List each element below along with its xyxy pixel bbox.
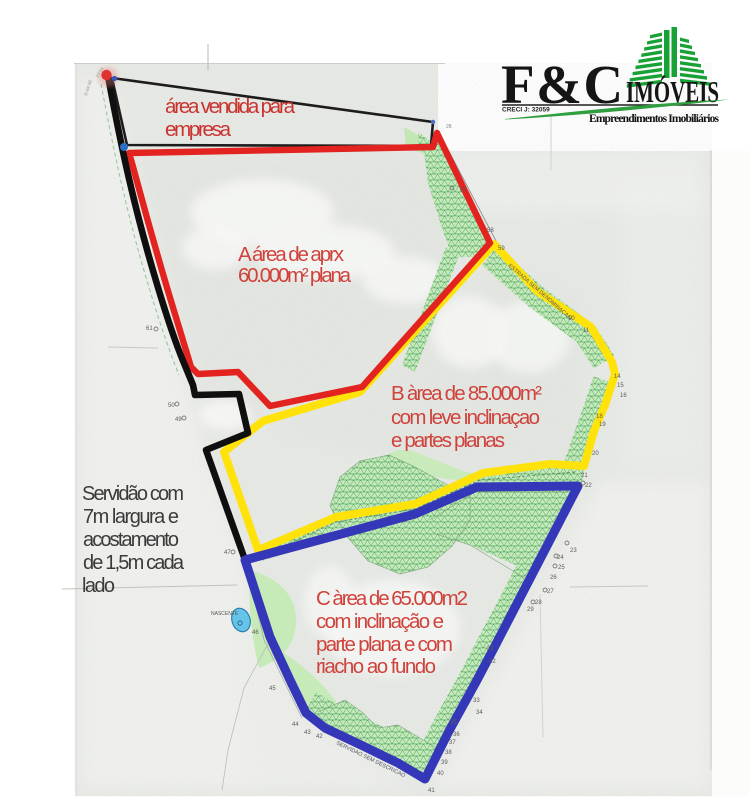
svg-text:36: 36: [453, 732, 460, 738]
svg-text:33: 33: [473, 698, 480, 704]
svg-text:NASCENTE: NASCENTE: [211, 611, 239, 617]
svg-text:07: 07: [460, 188, 467, 194]
svg-text:44: 44: [292, 722, 299, 728]
svg-text:lado: lado: [82, 575, 115, 597]
svg-text:21: 21: [581, 473, 588, 479]
svg-text:20: 20: [592, 451, 599, 457]
svg-text:empresa: empresa: [165, 118, 232, 141]
svg-text:46: 46: [252, 630, 259, 636]
svg-text:14: 14: [614, 374, 621, 380]
svg-text:35: 35: [450, 720, 457, 726]
svg-text:riacho ao fundo: riacho ao fundo: [316, 655, 436, 678]
svg-text:A área de aprx: A área de aprx: [238, 243, 345, 266]
svg-text:com inclinação e: com inclinação e: [316, 610, 444, 633]
svg-text:29: 29: [527, 607, 534, 613]
svg-text:34: 34: [476, 710, 483, 716]
svg-text:parte plana e com: parte plana e com: [316, 633, 453, 656]
svg-text:37: 37: [449, 740, 456, 746]
svg-text:47: 47: [224, 550, 231, 556]
svg-text:com leve inclinaçao: com leve inclinaçao: [391, 406, 540, 429]
svg-text:Servidão com: Servidão com: [82, 483, 184, 505]
svg-text:Empreendimentos Imobiliários: Empreendimentos Imobiliários: [589, 113, 720, 125]
svg-text:26: 26: [550, 575, 557, 581]
svg-text:43: 43: [304, 730, 311, 736]
svg-text:19: 19: [599, 422, 606, 428]
svg-text:38: 38: [445, 750, 452, 756]
svg-text:7m largura e: 7m largura e: [83, 506, 179, 528]
svg-text:58: 58: [487, 228, 494, 234]
svg-text:C àrea de 65.000m2: C àrea de 65.000m2: [316, 587, 468, 610]
svg-text:11: 11: [583, 328, 590, 334]
svg-text:acostamento: acostamento: [83, 529, 179, 551]
svg-text:50: 50: [168, 403, 175, 409]
svg-text:22: 22: [585, 483, 592, 489]
svg-text:23: 23: [570, 548, 577, 554]
svg-text:41: 41: [428, 788, 435, 794]
svg-text:e partes planas: e partes planas: [391, 429, 505, 452]
svg-text:27: 27: [547, 589, 554, 595]
svg-text:28: 28: [535, 600, 542, 606]
svg-text:de 1,5m cada: de 1,5m cada: [83, 552, 185, 574]
svg-text:16: 16: [620, 393, 627, 399]
svg-text:32: 32: [489, 659, 496, 665]
svg-text:15: 15: [617, 383, 624, 389]
svg-text:59: 59: [498, 246, 505, 252]
svg-text:45: 45: [269, 686, 276, 692]
svg-text:CRECI J: 32059: CRECI J: 32059: [502, 107, 550, 114]
svg-text:área vendida para: área vendida para: [165, 95, 296, 118]
svg-text:61: 61: [146, 326, 153, 332]
svg-text:28: 28: [446, 124, 452, 130]
svg-text:60.000m² plana: 60.000m² plana: [238, 264, 352, 287]
svg-text:18: 18: [596, 414, 603, 420]
svg-text:25: 25: [558, 565, 565, 571]
svg-text:31: 31: [487, 646, 494, 652]
svg-text:49: 49: [175, 417, 182, 423]
svg-text:39: 39: [441, 760, 448, 766]
svg-text:B àrea de 85.000m²: B àrea de 85.000m²: [391, 382, 542, 405]
svg-text:42: 42: [316, 734, 323, 740]
svg-text:40: 40: [437, 771, 444, 777]
